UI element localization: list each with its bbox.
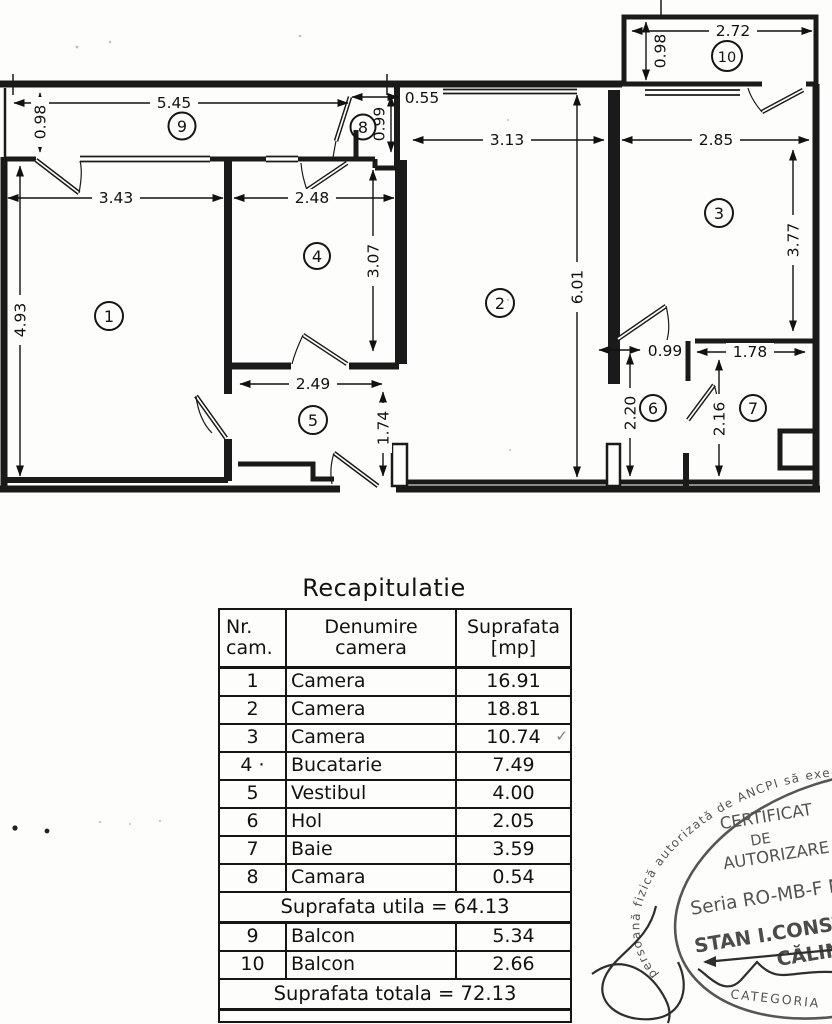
window-room1 <box>80 157 210 162</box>
dim-balcony9-height: 0.98 <box>32 105 50 140</box>
window-room3 <box>645 90 740 95</box>
room-9-label: 9 <box>169 113 196 140</box>
dim-room1-height: 4.93 <box>12 303 30 338</box>
svg-text:10: 10 <box>718 50 736 66</box>
dim-hol-width: 0.99 <box>648 342 683 360</box>
wall-baie-notch <box>780 431 816 468</box>
room-7-label: 7 <box>740 395 766 421</box>
room-2-label: 2 <box>486 289 514 317</box>
table-row: 1 Camera 16.91 <box>219 668 571 697</box>
stub-entry-right <box>392 444 407 486</box>
table-row: 8 Camara 0.54 <box>219 864 571 892</box>
table-row: 2 Camera 18.81 <box>219 696 571 724</box>
dim-room2-height: 6.01 <box>569 270 587 305</box>
table-row: 5 Vestibul 4.00 <box>219 780 571 808</box>
room-6-label: 6 <box>640 395 666 421</box>
stamp-name1: STAN I.CONST <box>693 911 832 958</box>
svg-text:9: 9 <box>177 117 187 136</box>
table-row: 3 Camera 10.74 ✓ <box>219 724 571 752</box>
dim-balcony9-width: 5.45 <box>157 94 192 112</box>
dim-room1-width: 3.43 <box>99 189 134 207</box>
table-row: 10 Balcon 2.66 <box>219 951 571 979</box>
table-row: 7 Baie 3.59 <box>219 836 571 864</box>
dim-camara-width: 0.55 <box>405 89 440 107</box>
stamp-autorizare: AUTORIZARE <box>722 838 831 874</box>
ink-dots <box>12 820 161 834</box>
walls <box>0 0 820 489</box>
svg-text:2: 2 <box>495 294 505 313</box>
wall-vestibul-niche <box>238 464 334 479</box>
room-5-label: 5 <box>299 406 327 434</box>
table-row: 4 · Bucatarie 7.49 <box>219 752 571 780</box>
dim-room3-width: 2.85 <box>699 131 734 149</box>
svg-text:3: 3 <box>714 204 724 223</box>
table-row: 6 Hol 2.05 <box>219 808 571 836</box>
check-mark: ✓ <box>555 728 568 745</box>
dim-balcony10-height: 0.98 <box>652 34 670 69</box>
window-room2 <box>443 90 577 94</box>
dim-balcony10-width: 2.72 <box>716 22 751 40</box>
subtotal-row: Suprafata utila = 64.13 <box>219 892 571 923</box>
svg-text:1: 1 <box>104 307 114 326</box>
stamp-certificat: CERTIFICAT <box>719 800 815 833</box>
stamp-de: DE <box>749 831 772 850</box>
dim-baie-width: 1.78 <box>733 343 768 361</box>
signature <box>592 906 832 1023</box>
header-nr: Nr. cam. <box>219 609 286 668</box>
table-row: 9 Balcon 5.34 <box>219 923 571 952</box>
scanned-floor-plan-page: 5.45 0.98 0.55 0.99 3.43 2.48 3.13 2.72 … <box>0 0 832 1024</box>
dim-vestibul-width: 2.49 <box>296 375 331 393</box>
dim-vestibul-height: 1.74 <box>375 411 393 446</box>
recap-title: Recapitulatie <box>218 574 550 602</box>
dim-room2-width: 3.13 <box>490 131 525 149</box>
stamp-ring <box>643 729 832 1024</box>
room-3-label: 3 <box>705 199 733 227</box>
table-header-row: Nr. cam. Denumire camera Suprafata [mp] <box>219 609 571 668</box>
floor-plan: 5.45 0.98 0.55 0.99 3.43 2.48 3.13 2.72 … <box>0 0 832 560</box>
svg-text:6: 6 <box>648 399 658 418</box>
dim-room4-height: 3.07 <box>365 244 383 279</box>
stamp-seria: Seria RO-MB-F Nr <box>689 874 832 920</box>
dim-room4-width: 2.48 <box>295 189 330 207</box>
door-swing-arcs <box>79 88 762 484</box>
room-10-label: 10 <box>712 41 742 71</box>
stamp-categoria: CATEGORIA <box>730 986 821 1010</box>
dim-room3-height: 3.77 <box>785 223 803 258</box>
svg-text:4: 4 <box>312 247 322 266</box>
doors <box>36 88 803 486</box>
dim-camara-height: 0.99 <box>371 107 389 142</box>
stamp-name2: CĂLIN <box>775 937 832 971</box>
empty-row <box>219 1010 571 1023</box>
svg-text:5: 5 <box>308 411 318 430</box>
dim-baie-height: 2.16 <box>711 402 729 437</box>
room-4-label: 4 <box>304 243 330 269</box>
header-suprafata: Suprafata [mp] <box>456 609 571 668</box>
svg-text:8: 8 <box>358 118 368 137</box>
stub-hol-left <box>607 444 620 486</box>
dim-hol-height: 2.20 <box>622 396 640 431</box>
window-room4 <box>266 157 298 162</box>
room-1-label: 1 <box>95 302 123 330</box>
svg-text:7: 7 <box>748 399 758 418</box>
total-row: Suprafata totala = 72.13 <box>219 979 571 1010</box>
recap-table: Nr. cam. Denumire camera Suprafata [mp] … <box>218 608 572 1023</box>
header-denumire: Denumire camera <box>286 609 456 668</box>
